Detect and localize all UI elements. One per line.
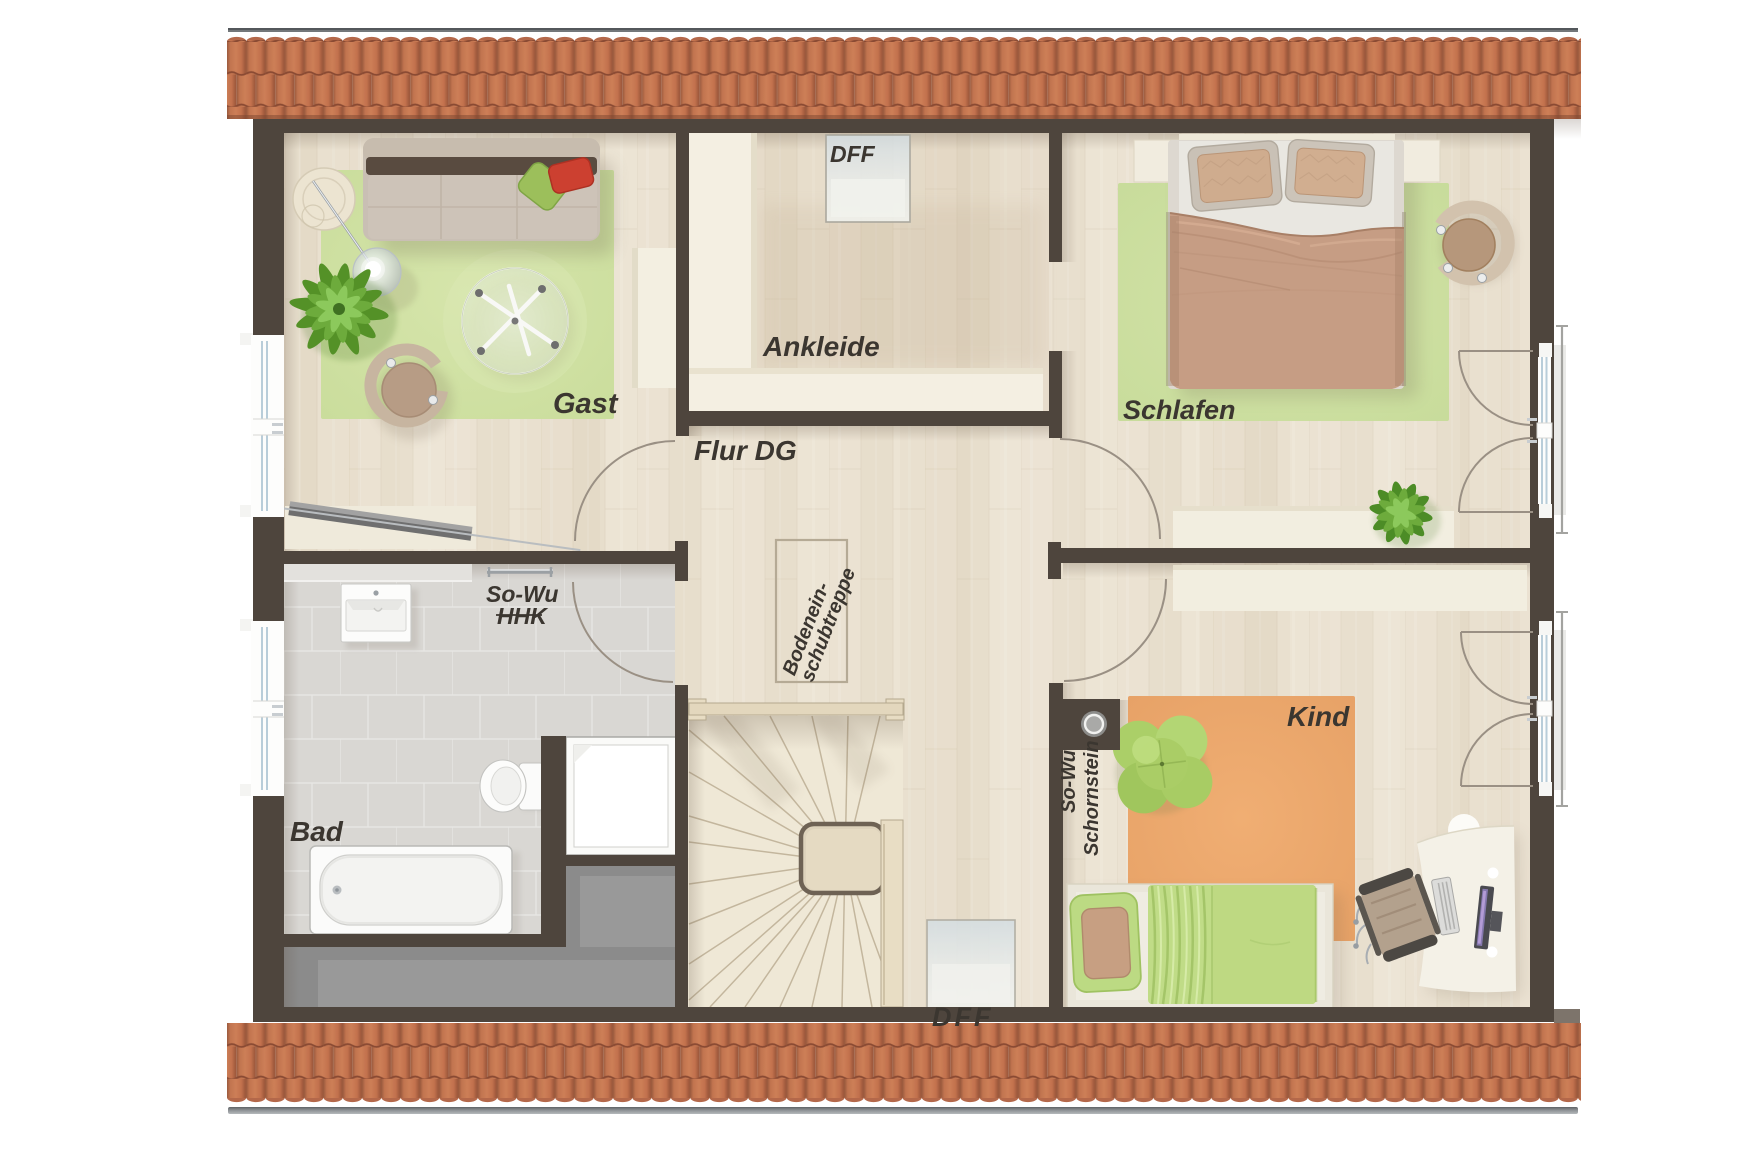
svg-text:HHK: HHK: [497, 603, 548, 629]
svg-text:Schornstein: Schornstein: [1081, 740, 1103, 856]
svg-text:DFF: DFF: [830, 141, 876, 167]
svg-text:Gast: Gast: [553, 388, 619, 420]
svg-text:Ankleide: Ankleide: [762, 331, 880, 362]
svg-text:So-Wu: So-Wu: [1058, 750, 1080, 813]
svg-text:Flur DG: Flur DG: [694, 435, 797, 466]
svg-text:Schlafen: Schlafen: [1123, 395, 1236, 425]
svg-text:Kind: Kind: [1287, 701, 1350, 732]
svg-text:DFF: DFF: [932, 1002, 993, 1032]
svg-text:Bad: Bad: [290, 816, 344, 847]
